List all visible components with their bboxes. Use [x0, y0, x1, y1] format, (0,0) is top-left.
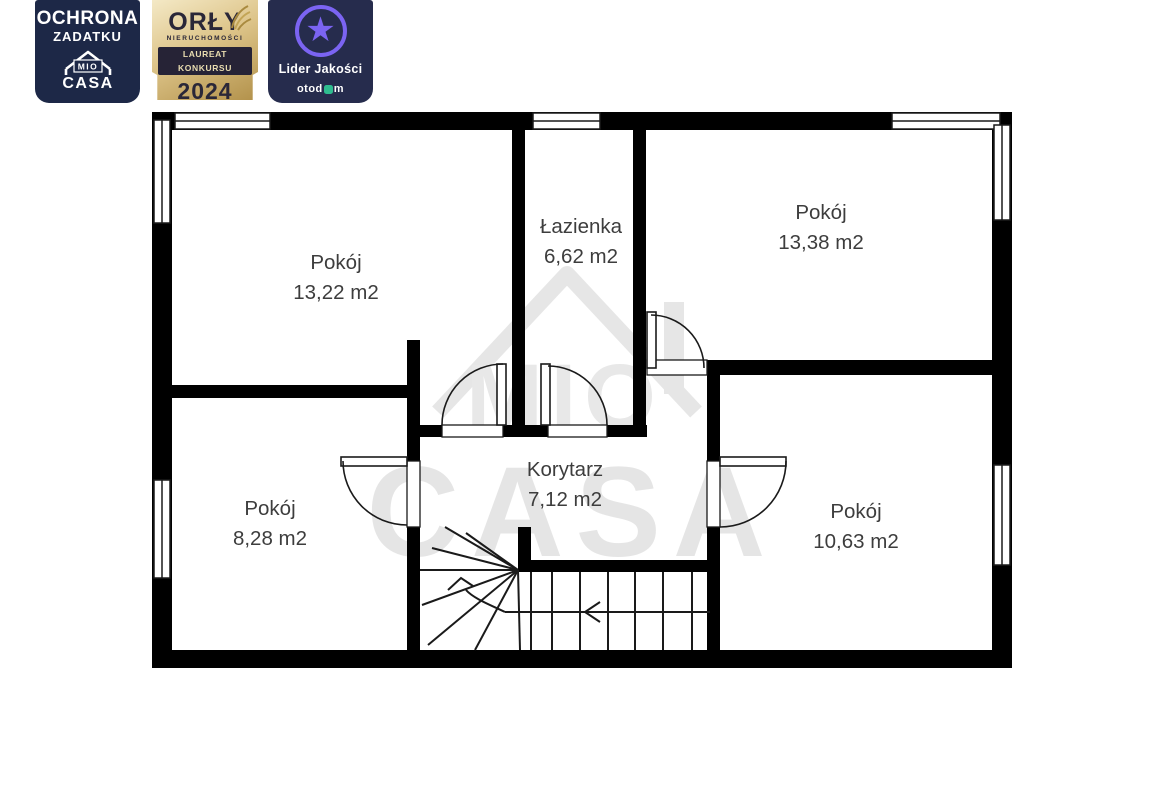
badge-lider-jakosci: ★ Lider Jakości otod m [268, 0, 373, 103]
otodom-logo: otod m [268, 83, 373, 95]
window [533, 113, 600, 129]
badge-ochrona-zadatku: OCHRONA ZADATKU MIO CASA [35, 0, 140, 103]
feather-icon [222, 4, 252, 34]
room-name: Pokój [293, 248, 378, 278]
room-label-korytarz: Korytarz 7,12 m2 [527, 455, 603, 515]
window [994, 465, 1010, 565]
room-area: 7,12 m2 [527, 485, 603, 515]
star-icon: ★ [305, 13, 335, 47]
badge-title: OCHRONA [35, 8, 140, 29]
room-label-pokoj-1: Pokój 13,22 m2 [293, 248, 378, 308]
star-circle-icon: ★ [295, 5, 347, 57]
otodom-text-prefix: otod [297, 83, 323, 95]
svg-text:MIO: MIO [77, 62, 98, 72]
room-name: Łazienka [540, 212, 622, 242]
mio-casa-logo-icon: MIO CASA [35, 47, 140, 96]
room-area: 13,38 m2 [778, 228, 863, 258]
window [892, 113, 1000, 129]
award-ribbon: LAUREAT KONKURSU [158, 47, 252, 75]
window [154, 120, 170, 223]
badge-orly-2024: ORŁY NIERUCHOMOŚCI LAUREAT KONKURSU 2024 [152, 0, 258, 100]
room-area: 8,28 m2 [233, 524, 307, 554]
room-name: Korytarz [527, 455, 603, 485]
room-name: Pokój [778, 198, 863, 228]
window [154, 480, 170, 578]
room-name: Pokój [233, 494, 307, 524]
window [994, 125, 1010, 220]
room-label-pokoj-4: Pokój 10,63 m2 [813, 497, 898, 557]
svg-text:CASA: CASA [62, 75, 113, 91]
room-label-pokoj-2: Pokój 13,38 m2 [778, 198, 863, 258]
otodom-green-square-icon [324, 85, 333, 94]
room-area: 13,22 m2 [293, 278, 378, 308]
room-label-pokoj-3: Pokój 8,28 m2 [233, 494, 307, 554]
award-subtitle: NIERUCHOMOŚCI [152, 34, 258, 43]
window [175, 113, 270, 129]
otodom-text-suffix: m [334, 83, 344, 95]
floorplan-page: MIO CASA [0, 0, 1170, 785]
room-name: Pokój [813, 497, 898, 527]
quality-title: Lider Jakości [268, 62, 373, 76]
room-area: 6,62 m2 [540, 242, 622, 272]
room-area: 10,63 m2 [813, 527, 898, 557]
badge-subtitle: ZADATKU [35, 29, 140, 44]
room-label-lazienka: Łazienka 6,62 m2 [540, 212, 622, 272]
floorplan-drawing: MIO CASA [0, 0, 1170, 785]
